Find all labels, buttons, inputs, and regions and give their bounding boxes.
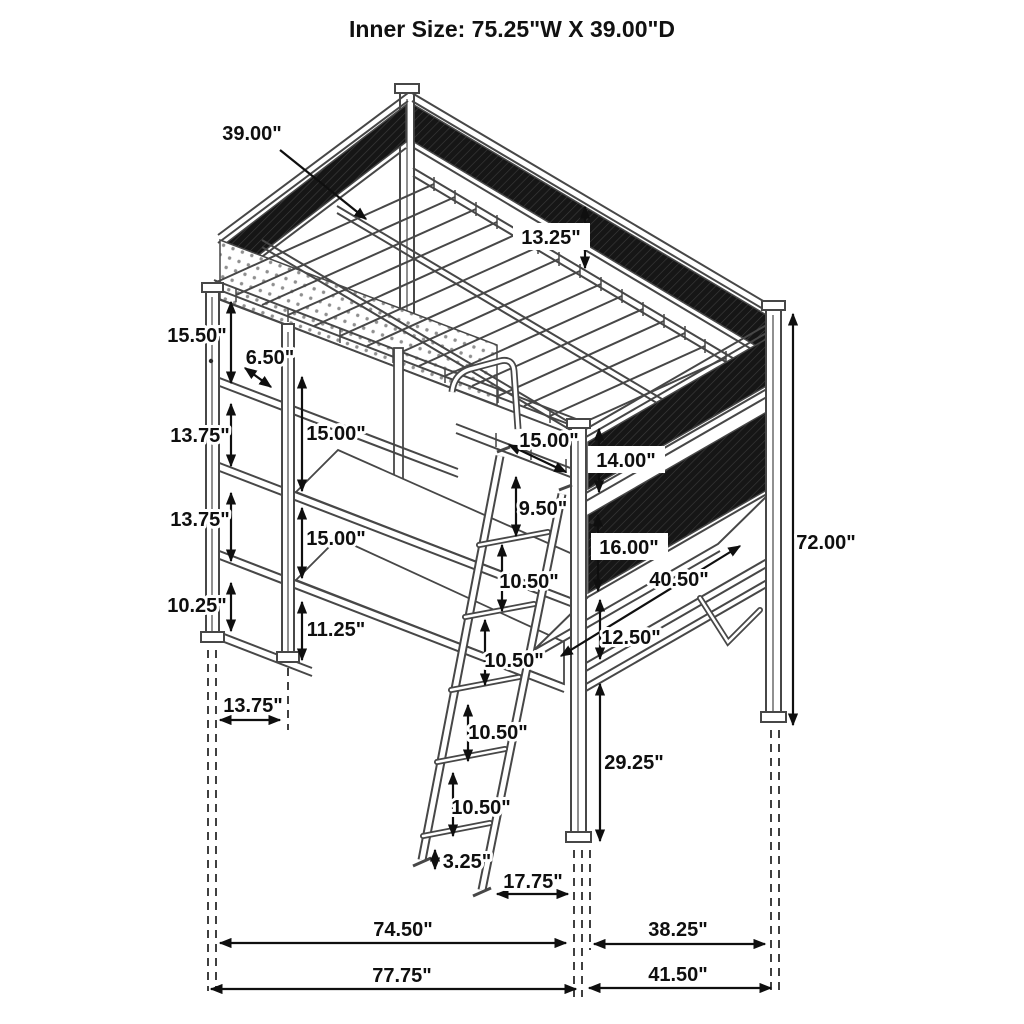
dim-label: 15.00" — [306, 528, 366, 550]
dim-label: 38.25" — [648, 919, 708, 941]
dim-desk-height-from-floor: 29.25" — [600, 684, 664, 841]
side-mesh-panel — [414, 105, 768, 353]
dim-label: 41.50" — [648, 964, 708, 986]
dim-label: 16.00" — [599, 537, 659, 559]
dim-end-width-inner: 38.25" — [594, 919, 765, 944]
dim-end-width-overall: 41.50" — [589, 964, 771, 988]
dim-label: 39.00" — [222, 123, 282, 145]
dim-shelf-gap-middle: 13.75" — [170, 404, 231, 466]
left-desk-surfaces — [296, 450, 586, 684]
dim-label: 15.50" — [167, 325, 227, 347]
dim-label: 13.75" — [170, 509, 230, 531]
dim-bed-length-overall: 77.75" — [211, 965, 576, 989]
page-title: Inner Size: 75.25"W X 39.00"D — [349, 16, 675, 42]
dim-label: 10.50" — [499, 571, 559, 593]
dim-shelf-unit-depth: 13.75" — [220, 695, 283, 720]
dim-shelf-gap-lower: 13.75" — [170, 493, 231, 561]
dim-label: 11.25" — [307, 619, 365, 641]
dim-label: 9.50" — [519, 498, 567, 520]
dim-shelf-gap-top: 15.50" — [167, 302, 231, 383]
dim-label: 13.75" — [223, 695, 283, 717]
dim-label: 15.00" — [306, 423, 366, 445]
dim-label: 12.50" — [601, 627, 661, 649]
dim-label: 10.25" — [167, 595, 227, 617]
dim-label: 15.00" — [519, 430, 579, 452]
dim-label: 13.75" — [170, 425, 230, 447]
dim-label: 40.50" — [649, 569, 709, 591]
dim-label: 6.50" — [246, 347, 294, 369]
dim-label: 10.50" — [451, 797, 511, 819]
dim-label: 10.50" — [484, 650, 544, 672]
dim-label: 17.75" — [503, 871, 563, 893]
dim-front-rail-length: 15.00" — [509, 430, 579, 472]
dim-label: 3.25" — [443, 851, 491, 873]
dim-label: 10.50" — [468, 722, 528, 744]
dim-overall-height: 72.00" — [793, 314, 856, 725]
dim-shelf-gap-bottom: 10.25" — [167, 583, 231, 631]
dim-label: 74.50" — [373, 919, 433, 941]
bed-structure — [201, 84, 786, 997]
dim-label: 13.25" — [521, 227, 581, 249]
diagram-page: 39.00" 13.25" 15.50" 6.50" 13.75" 15.00"… — [0, 0, 1024, 1024]
dim-bed-length-inner: 74.50" — [220, 919, 566, 943]
dim-label: 14.00" — [596, 450, 656, 472]
dim-label: 72.00" — [796, 532, 856, 554]
loft-bed-dimension-diagram: 39.00" 13.25" 15.50" 6.50" 13.75" 15.00"… — [0, 0, 1024, 1024]
dim-label: 77.75" — [372, 965, 432, 987]
dim-label: 29.25" — [604, 752, 664, 774]
dim-ladder-foot-offset: 17.75" — [497, 871, 568, 894]
dim-ladder-foot-height: 3.25" — [435, 850, 491, 873]
